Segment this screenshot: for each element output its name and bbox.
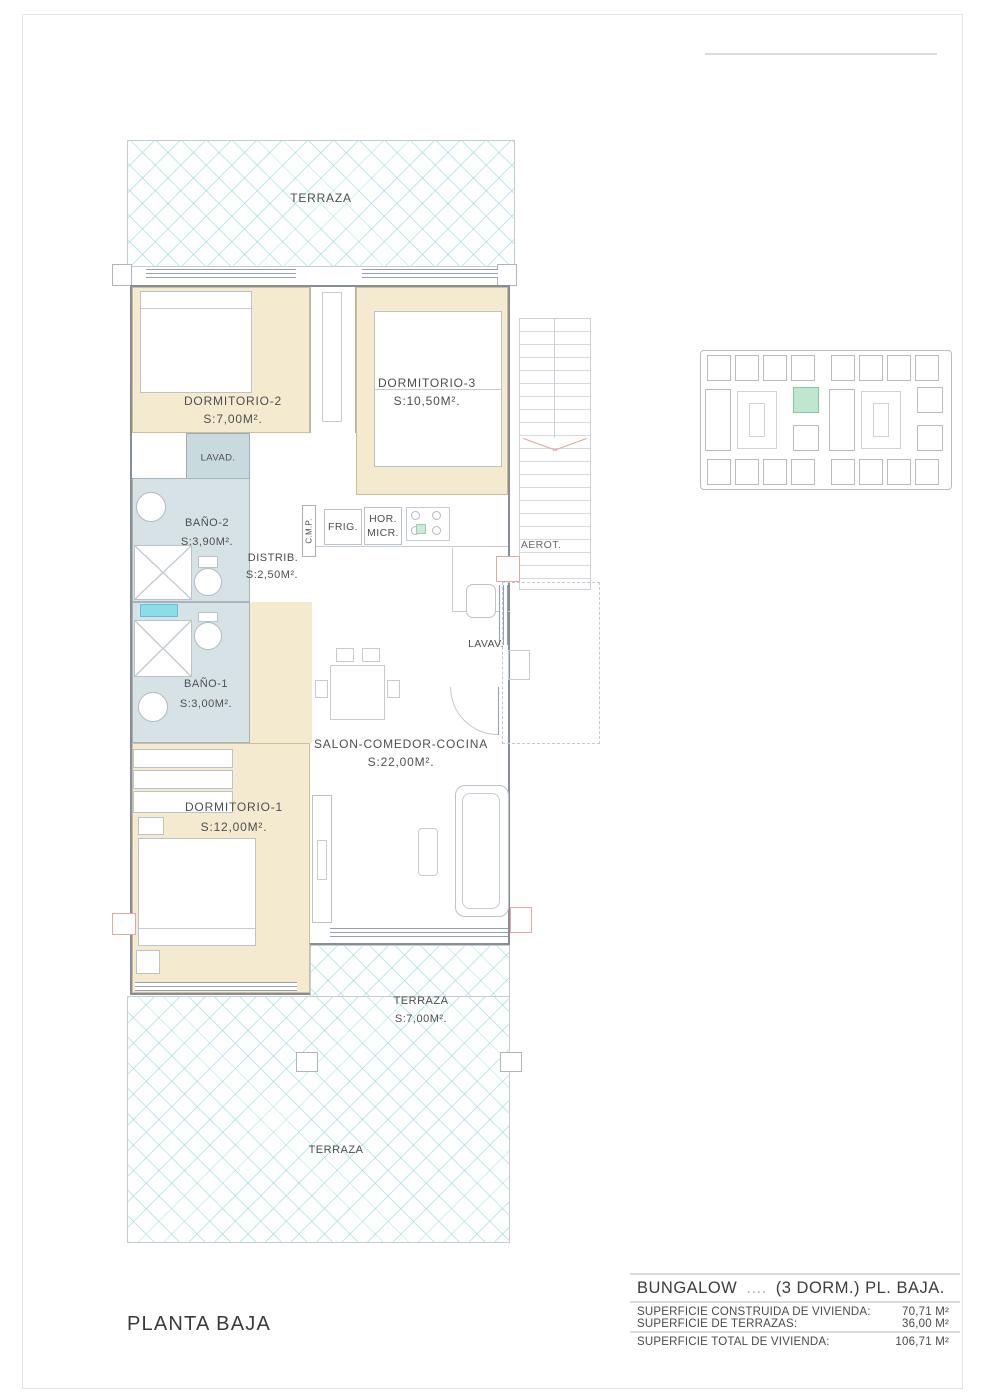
label-bano2-area: S:3,90M².: [181, 536, 233, 548]
sink-counter: [140, 604, 178, 617]
entrance-door-leaf: [498, 687, 499, 735]
label-micro: MICR.: [367, 527, 399, 539]
label-terraza-mid: TERRAZA: [394, 995, 449, 1007]
label-frig: FRIG.: [328, 521, 358, 533]
dining-chair: [387, 680, 400, 698]
site-plan-unit: [793, 425, 819, 451]
site-plan-unit: [887, 459, 911, 485]
label-terraza-bottom: TERRAZA: [309, 1144, 364, 1156]
dining-chair: [315, 680, 328, 698]
site-plan-unit: [873, 403, 889, 437]
wardrobe-dorm1: [133, 770, 233, 789]
unit-type: BUNGALOW: [637, 1279, 737, 1297]
site-plan-unit: [791, 355, 815, 381]
sofa-seat: [462, 793, 500, 909]
label-dorm2: DORMITORIO-2: [184, 394, 282, 408]
dining-chair: [362, 648, 380, 662]
title-block-rule: [630, 1331, 960, 1333]
label-dorm2-area: S:7,00M².: [203, 412, 262, 426]
site-plan-unit: [887, 355, 911, 381]
hob-burner: [432, 526, 441, 535]
site-plan-unit: [763, 355, 787, 381]
nightstand: [136, 950, 160, 974]
site-plan-unit: [791, 459, 815, 485]
top-right-rule: [705, 53, 937, 55]
shower-bano2: [134, 545, 192, 600]
bed-dorm2: [140, 291, 252, 393]
kitchen-sink-green: [416, 524, 426, 534]
pillar: [112, 264, 132, 286]
pillar: [497, 264, 517, 286]
site-plan-unit: [831, 459, 855, 485]
site-plan-unit: [735, 355, 759, 381]
site-plan-unit: [735, 459, 759, 485]
area-row-value: 36,00 M²: [902, 1318, 949, 1330]
site-plan-unit: [793, 387, 819, 413]
site-plan-unit: [749, 403, 765, 437]
passage-fill: [250, 602, 312, 743]
aerotermia-unit: [496, 556, 520, 582]
area-row-label: SUPERFICIE CONSTRUIDA DE VIVIENDA:: [637, 1306, 871, 1318]
label-cmp: C.M.P.: [305, 518, 314, 543]
site-plan-unit: [859, 355, 883, 381]
stair-center-line: [554, 318, 555, 438]
washbasin-bano2: [136, 492, 166, 522]
pergola-pillar: [296, 1052, 318, 1072]
site-plan-unit: [763, 459, 787, 485]
sheet: { "sheet": { "plan_title": "PLANTA BAJA"…: [0, 0, 989, 1400]
label-bano2: BAÑO-2: [185, 517, 229, 529]
pergola-pillar: [500, 1052, 522, 1072]
label-salon: SALON-COMEDOR-COCINA: [314, 737, 488, 751]
window-dorm1: [135, 982, 297, 991]
toilet-tank-bano2: [198, 556, 218, 568]
wardrobe-dorm1: [133, 749, 233, 768]
closet-inner: [322, 292, 342, 422]
label-salon-area: S:22,00M².: [368, 755, 435, 769]
dining-chair: [336, 648, 354, 662]
shower-bano1: [134, 620, 192, 677]
area-row-label: SUPERFICIE DE TERRAZAS:: [637, 1318, 797, 1330]
site-plan-unit: [917, 387, 943, 413]
label-dorm3-area: S:10,50M².: [394, 394, 461, 408]
area-row-value: 106,71 M²: [895, 1336, 949, 1348]
area-row: SUPERFICIE CONSTRUIDA DE VIVIENDA: 70,71…: [637, 1306, 949, 1318]
label-distrib-area: S:2,50M².: [246, 569, 298, 581]
label-dorm1: DORMITORIO-1: [185, 800, 283, 814]
title-block-rule: [630, 1273, 960, 1275]
label-bano1: BAÑO-1: [184, 678, 228, 690]
label-dorm3: DORMITORIO-3: [378, 376, 476, 390]
tv: [317, 840, 327, 880]
area-row: SUPERFICIE DE TERRAZAS: 36,00 M²: [637, 1318, 949, 1330]
label-dorm1-area: S:12,00M².: [201, 820, 268, 834]
title-block-title: BUNGALOW .... (3 DORM.) PL. BAJA.: [637, 1279, 955, 1298]
pillar-marker: [510, 907, 532, 933]
plan-title: PLANTA BAJA: [127, 1313, 271, 1336]
label-lavadero: LAVAD.: [201, 453, 236, 464]
unit-number: ....: [746, 1279, 766, 1297]
pillar-marker: [112, 913, 136, 935]
hob-burner: [432, 511, 441, 520]
label-distrib: DISTRIB.: [248, 552, 298, 564]
label-bano1-area: S:3,00M².: [180, 698, 232, 710]
site-plan-unit: [831, 355, 855, 381]
kitchen-counter-edge: [312, 546, 508, 547]
toilet-bano1: [194, 622, 222, 650]
label-terraza-top: TERRAZA: [290, 191, 352, 205]
terrace-bottom-area: [127, 996, 510, 1243]
site-plan-unit: [859, 459, 883, 485]
site-plan-unit: [705, 389, 731, 451]
area-row-total: SUPERFICIE TOTAL DE VIVIENDA: 106,71 M²: [637, 1336, 949, 1348]
toilet-tank-bano1: [198, 612, 218, 622]
window-salon: [330, 928, 508, 937]
dining-table: [330, 665, 385, 720]
bed-dorm1: [138, 838, 256, 946]
site-plan-unit: [915, 459, 939, 485]
window-dorm3: [362, 269, 498, 278]
site-plan-unit: [707, 355, 731, 381]
washbasin-bano1: [138, 692, 168, 722]
site-plan-unit: [707, 459, 731, 485]
label-aerot: AEROT.: [521, 539, 561, 551]
label-horno: HOR.: [369, 513, 397, 525]
site-plan-unit: [829, 389, 855, 451]
label-lavav: LAVAV.: [468, 638, 504, 650]
window-dorm2: [146, 269, 296, 278]
area-row-label: SUPERFICIE TOTAL DE VIVIENDA:: [637, 1336, 830, 1348]
site-plan-unit: [915, 355, 939, 381]
site-plan: [700, 350, 952, 490]
nightstand: [138, 817, 164, 835]
hob-burner: [411, 511, 420, 520]
title-block-rule: [630, 1301, 960, 1303]
toilet-bano2: [194, 568, 222, 596]
label-terraza-mid-area: S:7,00M².: [395, 1013, 447, 1025]
site-plan-unit: [917, 425, 943, 451]
entry-step: [508, 650, 530, 680]
coffee-table: [418, 828, 438, 876]
kitchen-sink: [466, 584, 496, 618]
unit-suffix: (3 DORM.) PL. BAJA.: [776, 1279, 945, 1297]
area-row-value: 70,71 M²: [902, 1306, 949, 1318]
